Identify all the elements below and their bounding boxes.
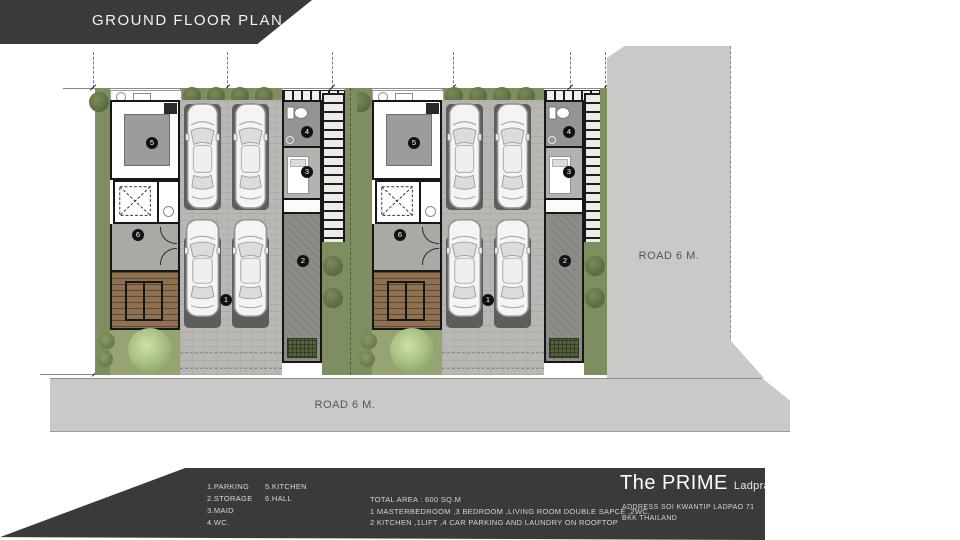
legend-item: 1.PARKING	[207, 481, 253, 493]
floor-plan-sheet: GROUND FLOOR PLAN ROAD 6 M. ROAD 6 M.	[0, 0, 960, 540]
room-storage	[282, 212, 322, 363]
lift-shaft	[113, 180, 159, 224]
house-unit-2: 5 6 1 4 3 2	[357, 88, 607, 375]
tree-icon	[128, 328, 172, 372]
room-number-wc: 4	[563, 126, 575, 138]
tree-icon	[89, 92, 109, 112]
room-wc	[282, 100, 322, 148]
landing	[544, 200, 584, 212]
car-icon	[495, 102, 530, 210]
basin-icon	[425, 206, 436, 217]
address-line: ADDRESS SOI KWANTIP LADPAO 71	[622, 502, 754, 513]
brand-title: The PRIME	[620, 472, 728, 494]
tree-icon	[323, 256, 343, 276]
legend-item: 3.MAID	[207, 505, 253, 517]
grass-strip-right	[584, 242, 607, 375]
property-line	[350, 88, 351, 375]
lift-shaft	[375, 180, 421, 224]
driveway-line	[442, 352, 544, 353]
tree-icon	[323, 288, 343, 308]
tree-icon	[585, 256, 605, 276]
room-number-wc: 4	[301, 126, 313, 138]
car-icon	[233, 218, 268, 318]
driveway-line	[180, 368, 282, 369]
car-icon	[495, 218, 530, 318]
legend-column-2: 5.KITCHEN 6.HALL	[265, 481, 307, 505]
legend-item: 4.WC.	[207, 517, 253, 529]
summary-line: 1 MASTERBEDROOM ,3 BEDROOM ,LIVING ROOM …	[370, 506, 650, 518]
room-number-storage: 2	[559, 255, 571, 267]
fridge-icon	[164, 103, 177, 114]
parking-driveway	[442, 100, 544, 375]
planter-pad	[549, 338, 579, 358]
room-kitchen	[110, 100, 180, 180]
staircase	[110, 270, 180, 330]
legend-item: 6.HALL	[265, 493, 307, 505]
lift-lobby	[421, 180, 442, 224]
car-icon	[447, 102, 482, 210]
summary-total-area: TOTAL AREA : 600 SQ.M	[370, 494, 650, 506]
room-number-parking: 1	[220, 294, 232, 306]
brand-address: ADDRESS SOI KWANTIP LADPAO 71 BKK THAILA…	[622, 502, 754, 524]
grass-strip-left	[95, 88, 110, 375]
tree-icon	[390, 328, 434, 372]
stair-railing-line	[143, 281, 145, 321]
room-number-hall: 6	[132, 229, 144, 241]
lift-lobby	[159, 180, 180, 224]
bush-icon	[99, 333, 115, 349]
stair-railing-line	[405, 281, 407, 321]
side-walkway-grating	[322, 93, 345, 242]
house-unit-1: 5 6 1 4 3 2	[95, 88, 345, 375]
room-wc	[544, 100, 584, 148]
car-icon	[185, 218, 220, 318]
grass-strip-left	[357, 88, 372, 375]
grass-yard-front	[372, 330, 442, 375]
planter-pad	[287, 338, 317, 358]
door-swing-icon	[422, 227, 439, 244]
site-plan: 5 6 1 4 3 2	[0, 0, 960, 540]
parking-driveway	[180, 100, 282, 375]
summary-line: 2 KITCHEN ,1LIFT ,4 CAR PARKING AND LAUN…	[370, 517, 650, 529]
car-icon	[185, 102, 220, 210]
bush-icon	[361, 333, 377, 349]
room-hall	[372, 224, 442, 270]
room-number-maid: 3	[301, 166, 313, 178]
legend-item: 5.KITCHEN	[265, 481, 307, 493]
grass-strip-middle	[345, 88, 357, 375]
grass-strip-road-edge	[600, 88, 607, 248]
lift-icon	[377, 182, 419, 222]
room-number-storage: 2	[297, 255, 309, 267]
landing	[282, 200, 322, 212]
legend-column-1: 1.PARKING 2.STORAGE 3.MAID 4.WC.	[207, 481, 253, 529]
grass-yard-front	[110, 330, 180, 375]
basin-icon	[548, 136, 556, 144]
toilet-icon	[286, 104, 308, 122]
door-swing-icon	[422, 248, 439, 265]
car-icon	[233, 102, 268, 210]
room-storage	[544, 212, 584, 363]
legend-item: 2.STORAGE	[207, 493, 253, 505]
room-number-maid: 3	[563, 166, 575, 178]
bush-icon	[97, 351, 113, 367]
room-number-kitchen: 5	[408, 137, 420, 149]
room-number-parking: 1	[482, 294, 494, 306]
grass-strip-right	[322, 242, 345, 375]
driveway-line	[442, 368, 544, 369]
room-number-hall: 6	[394, 229, 406, 241]
tree-icon	[585, 288, 605, 308]
room-number-kitchen: 5	[146, 137, 158, 149]
driveway-line	[180, 352, 282, 353]
basin-icon	[286, 136, 294, 144]
staircase	[372, 270, 442, 330]
lift-icon	[115, 182, 157, 222]
toilet-icon	[548, 104, 570, 122]
project-summary: TOTAL AREA : 600 SQ.M 1 MASTERBEDROOM ,3…	[370, 494, 650, 529]
bush-icon	[359, 351, 375, 367]
door-swing-icon	[160, 227, 177, 244]
fridge-icon	[426, 103, 439, 114]
room-hall	[110, 224, 180, 270]
room-kitchen	[372, 100, 442, 180]
car-icon	[447, 218, 482, 318]
address-line: BKK THAILAND	[622, 513, 754, 524]
door-swing-icon	[160, 248, 177, 265]
basin-icon	[163, 206, 174, 217]
